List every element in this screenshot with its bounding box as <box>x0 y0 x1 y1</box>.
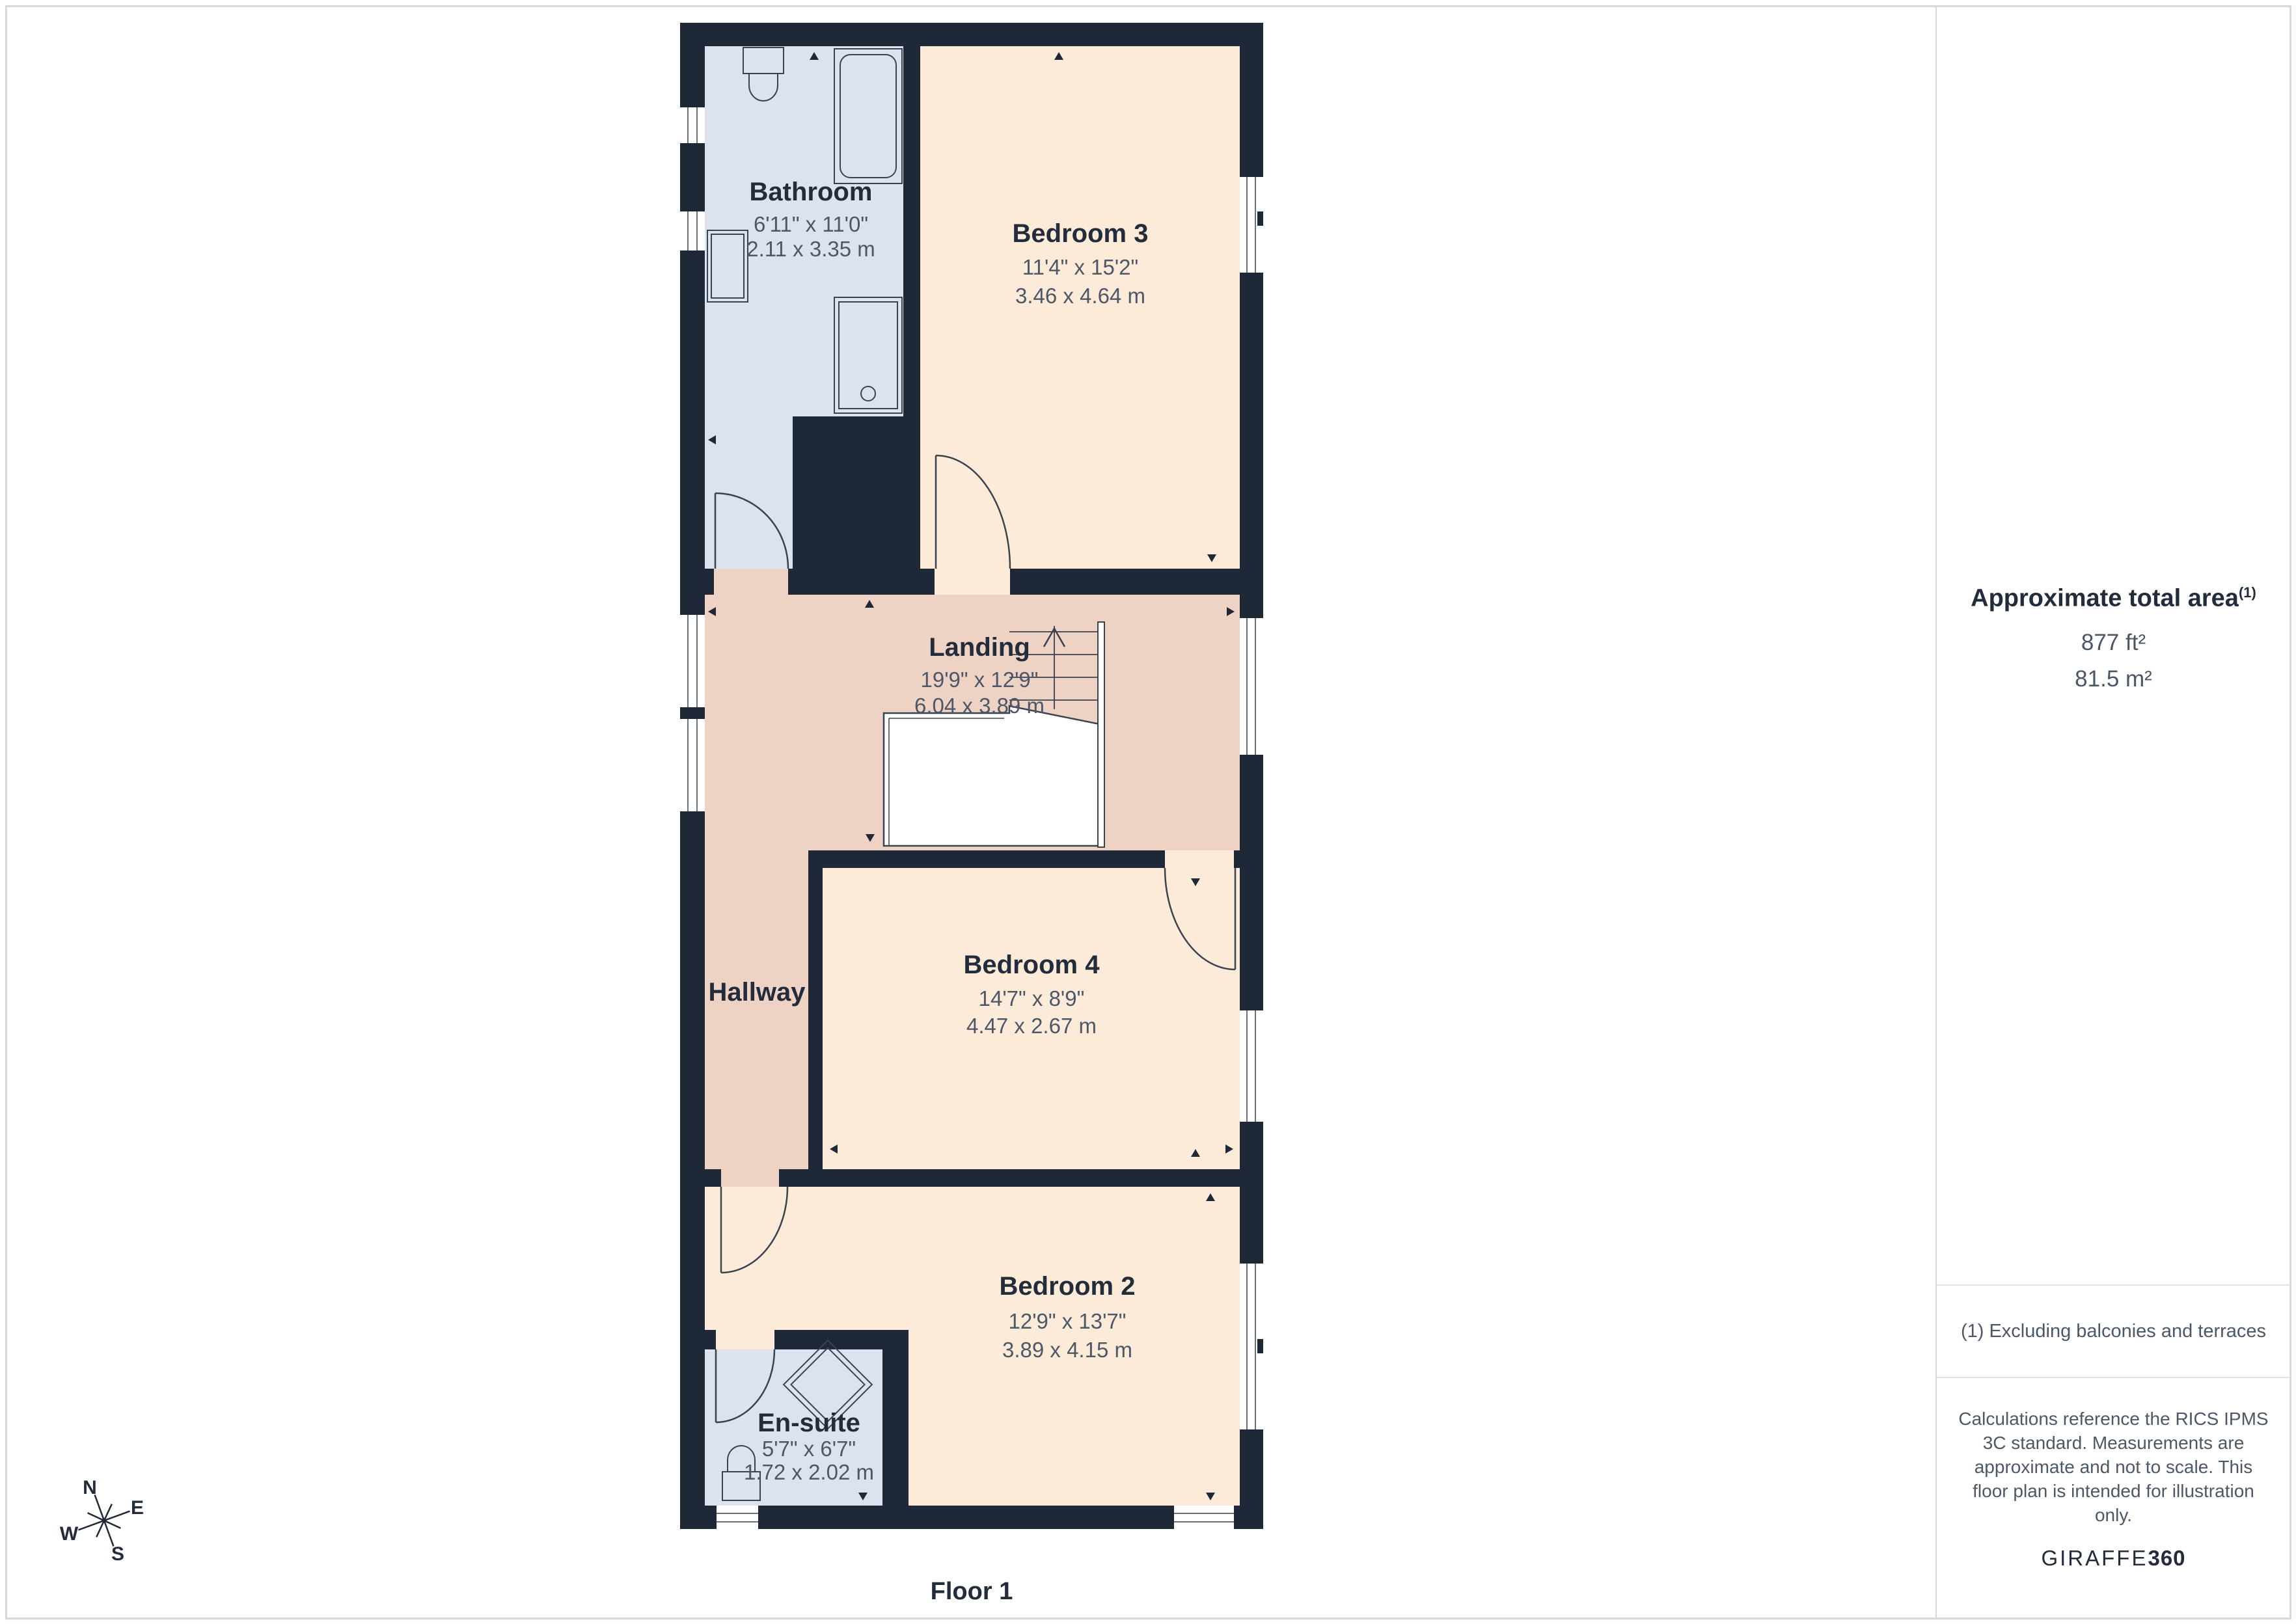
total-area-imperial: 877 ft² <box>1937 630 2290 656</box>
ensuite-imperial: 5'7" x 6'7" <box>762 1437 856 1461</box>
landing-title: Landing <box>929 633 1030 662</box>
stairwell-void <box>884 706 1100 846</box>
floor-plan: Bathroom 6'11" x 11'0" 2.11 x 3.35 m Bed… <box>677 13 1269 1549</box>
window <box>1240 618 1263 755</box>
area-footnote: (1) Excluding balconies and terraces <box>1937 1286 2290 1377</box>
window <box>680 719 705 811</box>
bathroom-metric: 2.11 x 3.35 m <box>746 237 875 261</box>
total-area-block: Approximate total area(1) 877 ft² 81.5 m… <box>1937 584 2290 692</box>
compass-star-icon <box>79 1495 130 1547</box>
window <box>1174 1506 1234 1529</box>
window <box>680 615 705 707</box>
compass-west: W <box>60 1523 79 1545</box>
bedroom4-metric: 4.47 x 2.67 m <box>966 1014 1097 1038</box>
bedroom3-title: Bedroom 3 <box>1013 219 1149 248</box>
bedroom2-imperial: 12'9" x 13'7" <box>1009 1309 1127 1333</box>
window <box>1240 1010 1263 1122</box>
window <box>1240 177 1263 273</box>
bedroom2-title: Bedroom 2 <box>1000 1272 1136 1301</box>
giraffe360-logo: GIRAFFE360 <box>1937 1546 2290 1571</box>
bedroom3-metric: 3.46 x 4.64 m <box>1015 284 1145 308</box>
window <box>680 211 705 250</box>
footnote-marker: (1) <box>2239 584 2256 601</box>
window <box>1240 1264 1263 1429</box>
landing-imperial: 19'9" x 12'9" <box>921 668 1039 692</box>
bedroom4-imperial: 14'7" x 8'9" <box>979 986 1085 1010</box>
total-area-title: Approximate total area(1) <box>1937 584 2290 613</box>
total-area-metric: 81.5 m² <box>1937 666 2290 692</box>
compass-north: N <box>83 1477 97 1498</box>
bedroom3-imperial: 11'4" x 15'2" <box>1022 255 1139 279</box>
landing-metric: 6.04 x 3.89 m <box>914 694 1045 718</box>
compass-rose: N E W S <box>20 1464 176 1581</box>
bathroom-title: Bathroom <box>750 178 873 206</box>
floorplan-page: Bathroom 6'11" x 11'0" 2.11 x 3.35 m Bed… <box>0 0 2296 1624</box>
window <box>680 107 705 143</box>
bedroom2-metric: 3.89 x 4.15 m <box>1002 1338 1132 1362</box>
disclaimer-text: Calculations reference the RICS IPMS 3C … <box>1937 1407 2290 1527</box>
ensuite-title: En-suite <box>758 1409 860 1437</box>
floor-label: Floor 1 <box>841 1578 1102 1606</box>
window <box>717 1506 758 1529</box>
bedroom4-title: Bedroom 4 <box>964 951 1100 979</box>
compass-east: E <box>131 1497 144 1519</box>
stair-railing <box>1098 622 1104 847</box>
bathroom-imperial: 6'11" x 11'0" <box>754 212 868 236</box>
compass-south: S <box>111 1543 124 1565</box>
sidebar-rule <box>1937 1377 2290 1378</box>
hallway-title: Hallway <box>709 978 806 1007</box>
ensuite-metric: 1.72 x 2.02 m <box>744 1460 874 1484</box>
